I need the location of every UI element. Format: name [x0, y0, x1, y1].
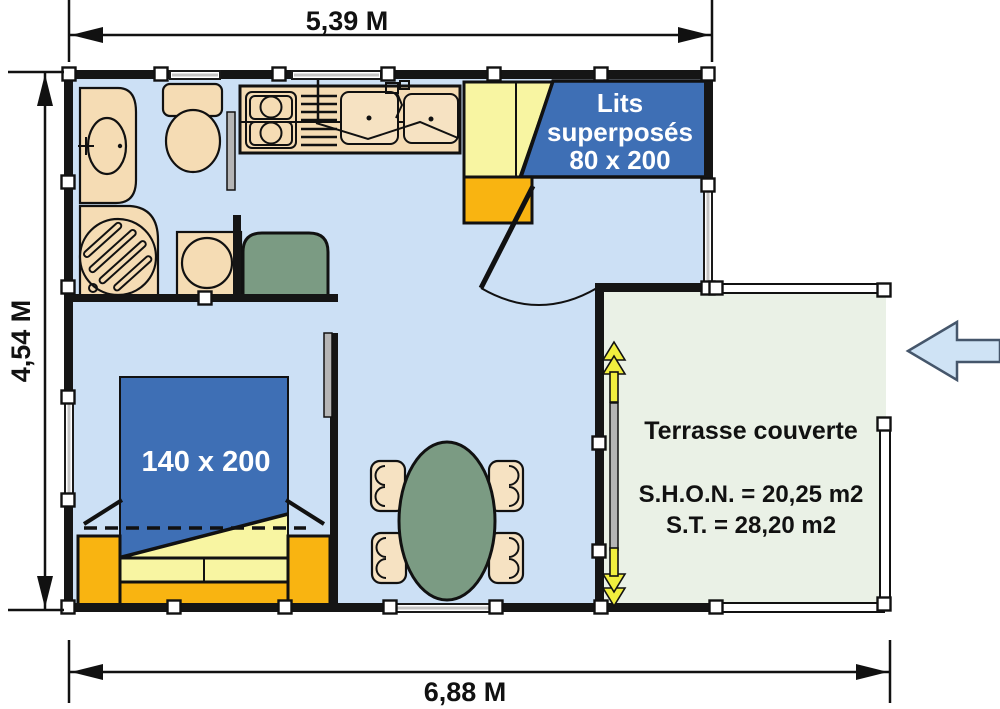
railing-top [714, 284, 884, 293]
wall-post [63, 68, 76, 81]
terrace-st: S.T. = 28,20 m2 [666, 512, 836, 539]
toilet-bowl [166, 110, 220, 172]
dimension-left-label: 4,54 M [6, 300, 36, 383]
dimension-top: 5,39 M [69, 0, 712, 62]
terrace-shon: S.H.O.N. = 20,25 m2 [639, 481, 864, 508]
wall-post [878, 284, 891, 297]
bench-seat [243, 233, 328, 300]
window-top-1 [170, 71, 220, 79]
wall-post [593, 437, 606, 450]
dining-table [399, 442, 495, 600]
double-bed-label: 140 x 200 [141, 446, 270, 478]
wall-post [382, 68, 395, 81]
side-unit-left [78, 536, 120, 608]
bedroom-sliding-door [324, 333, 332, 417]
window-top-2 [292, 71, 381, 79]
dimension-left: 4,54 M [6, 72, 64, 610]
wall-post [702, 68, 715, 81]
wall-post [273, 68, 286, 81]
wall-post [488, 68, 501, 81]
kitchen-cabinet [464, 177, 532, 223]
terrace-title: Terrasse couverte [644, 417, 858, 445]
wall-post [62, 494, 75, 507]
wall-post [62, 281, 75, 294]
wall-post [878, 418, 891, 431]
wall-post [710, 601, 723, 614]
wall-post [384, 601, 397, 614]
wall-post [62, 601, 75, 614]
side-unit-right [288, 536, 330, 608]
wall-post [62, 176, 75, 189]
wall-post [62, 391, 75, 404]
wall-post [279, 601, 292, 614]
bathroom-sliding-door [227, 112, 235, 190]
bunk-bed-label-line3: 80 x 200 [569, 145, 670, 175]
window-left [65, 398, 73, 499]
wall-left [64, 70, 73, 612]
wall-post [878, 598, 891, 611]
vanity-drain [118, 144, 122, 148]
window-right [704, 188, 712, 284]
wall-post [155, 68, 168, 81]
wall-post [593, 545, 606, 558]
sink-right-drain [429, 117, 434, 122]
kitchen-counter [240, 80, 460, 153]
bunk-bed-label-line2: superposés [547, 117, 693, 147]
wall-terrace-top-solid [595, 283, 716, 292]
floor-plan-drawing: Lits superposés 80 x 200 [0, 0, 1000, 709]
floor-plan: Lits superposés 80 x 200 [0, 0, 1000, 709]
wall-post [710, 282, 723, 295]
wall-terrace-bottom-solid [604, 603, 714, 612]
wall-post [199, 292, 212, 305]
wall-post [702, 179, 715, 192]
wall-post [168, 601, 181, 614]
wall-post [595, 68, 608, 81]
railing-bottom [712, 603, 884, 612]
window-bottom [390, 604, 497, 612]
terrace-floor [604, 288, 886, 608]
wall-post [490, 601, 503, 614]
wall-post [595, 601, 608, 614]
dimension-bottom: 6,88 M [69, 640, 890, 707]
dimension-bottom-label: 6,88 M [424, 677, 507, 707]
washbasin-bowl [182, 238, 232, 288]
entrance-arrow-icon [908, 322, 1000, 380]
bunk-bed-label-line1: Lits [597, 88, 643, 118]
wall-bathroom-right [233, 215, 241, 302]
railing-right [880, 424, 890, 604]
terrace-sliding-door [610, 403, 618, 550]
dimension-top-label: 5,39 M [306, 6, 389, 36]
sink-left-drain [367, 116, 372, 121]
